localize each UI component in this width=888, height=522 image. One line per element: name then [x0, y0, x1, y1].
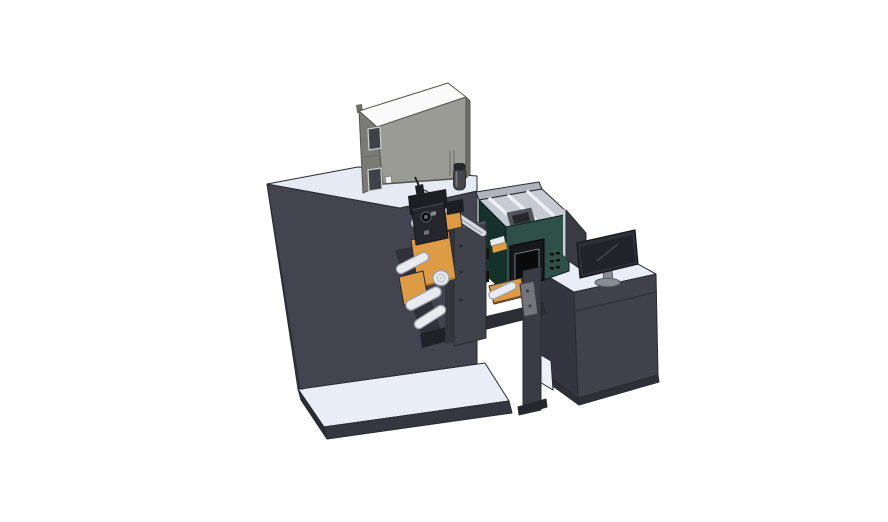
vent-slot [556, 259, 560, 261]
roller-end-hub [440, 277, 443, 280]
sensor-bracket-hole [526, 289, 529, 292]
printer-unit-right-edge [466, 97, 470, 178]
station-plate-front [454, 221, 486, 346]
printer-unit-window-lower [368, 168, 382, 191]
print-head-knob-hub [424, 215, 428, 219]
plate-bolt [460, 271, 463, 274]
sensor-bracket-hole [528, 304, 531, 307]
printer-unit-window-upper [368, 127, 381, 150]
vent-slot [556, 266, 560, 268]
machine-assembly-render [0, 0, 888, 522]
exhaust-cylinder [454, 163, 466, 190]
vent-slot [550, 260, 554, 262]
vent-slot [550, 267, 554, 269]
vent-slot [556, 252, 560, 254]
cad-render-viewport [0, 0, 888, 522]
exhaust-cylinder-cap [454, 163, 466, 171]
vent-slot [550, 253, 554, 255]
plate-bolt [460, 245, 463, 248]
monitor-stand-base [595, 278, 620, 286]
printer-unit [356, 83, 470, 193]
plate-bolt [460, 299, 463, 302]
